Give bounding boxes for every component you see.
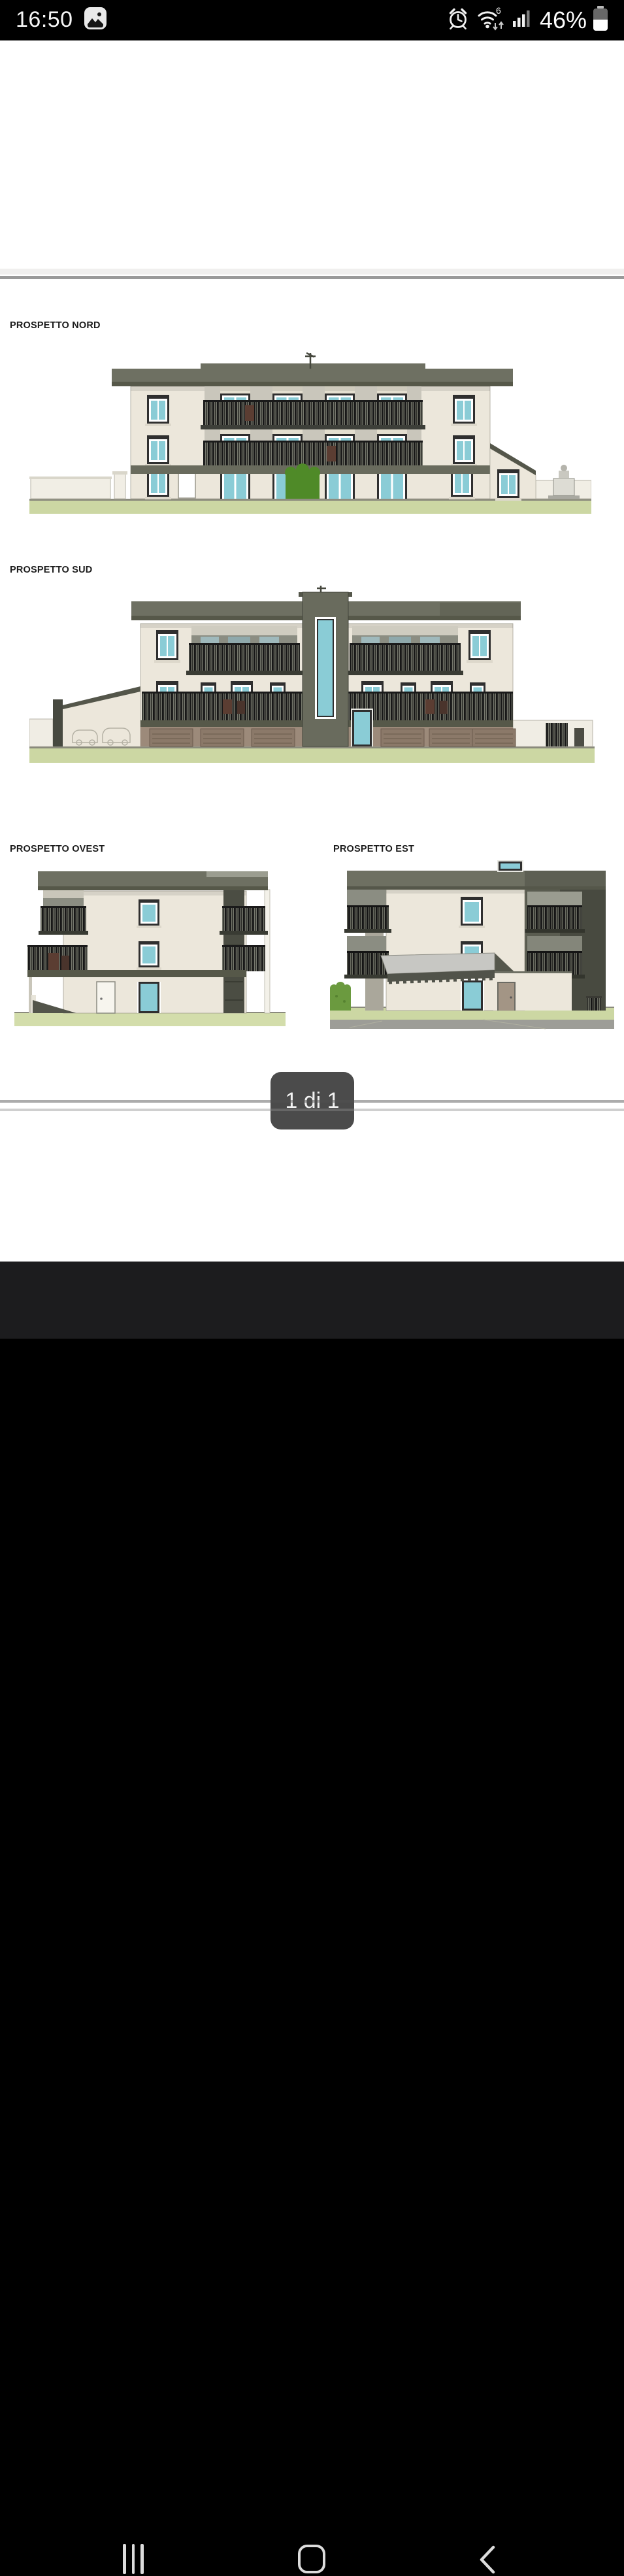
west-elevation-label: PROSPETTO OVEST xyxy=(10,844,105,854)
phone-screen: 16:50 xyxy=(0,0,624,1339)
status-bar-right: 6 46% xyxy=(446,5,608,35)
signal-strength-icon xyxy=(513,8,531,31)
south-elevation-label: PROSPETTO SUD xyxy=(10,565,92,575)
north-elevation-drawing xyxy=(29,340,591,515)
ground-door xyxy=(97,982,115,1013)
north-right-annex xyxy=(490,443,580,501)
annex-door xyxy=(499,983,514,1011)
south-right-wall xyxy=(513,720,593,746)
alarm-icon xyxy=(446,6,470,34)
wifi-generation-text: 6 xyxy=(496,5,501,16)
north-bush xyxy=(285,463,320,499)
pdf-viewer[interactable]: PROSPETTO NORD PROSPETTO SUD PROSPETTO O… xyxy=(0,41,624,1262)
battery-icon xyxy=(593,5,608,35)
wifi-icon: 6 xyxy=(476,5,507,35)
east-fence xyxy=(586,996,602,1011)
battery-percent-text: 46% xyxy=(540,7,587,34)
north-roof xyxy=(112,353,513,386)
page-bottom-edge-shadow xyxy=(0,1109,624,1111)
status-bar: 16:50 xyxy=(0,0,624,41)
recents-button[interactable] xyxy=(123,2544,144,2574)
west-ground xyxy=(14,1012,286,1026)
east-hedge xyxy=(330,982,351,1011)
west-elevation-drawing xyxy=(14,863,286,1029)
east-roof xyxy=(347,860,606,890)
navigation-bar xyxy=(0,1262,624,1339)
east-elevation-drawing xyxy=(330,859,614,1030)
back-icon xyxy=(478,2545,497,2574)
back-button[interactable] xyxy=(478,2545,497,2574)
clock-text: 16:50 xyxy=(16,7,73,33)
south-left-annex xyxy=(29,686,140,746)
antenna xyxy=(317,586,326,592)
south-ground xyxy=(29,746,595,763)
east-left-balconies xyxy=(344,890,391,1011)
page-top-edge-line xyxy=(0,276,624,279)
entry-door xyxy=(354,712,370,744)
gallery-icon xyxy=(84,7,107,33)
east-elevation-label: PROSPETTO EST xyxy=(333,844,414,854)
home-button[interactable] xyxy=(298,2545,325,2573)
north-ground xyxy=(29,499,591,514)
page-top-edge xyxy=(0,269,624,275)
status-bar-left: 16:50 xyxy=(16,7,107,33)
north-elevation-label: PROSPETTO NORD xyxy=(10,320,101,331)
south-elevation-drawing xyxy=(29,584,595,767)
west-roof xyxy=(38,871,268,890)
recents-icon xyxy=(123,2544,126,2574)
page-bottom-edge-line xyxy=(0,1100,624,1103)
